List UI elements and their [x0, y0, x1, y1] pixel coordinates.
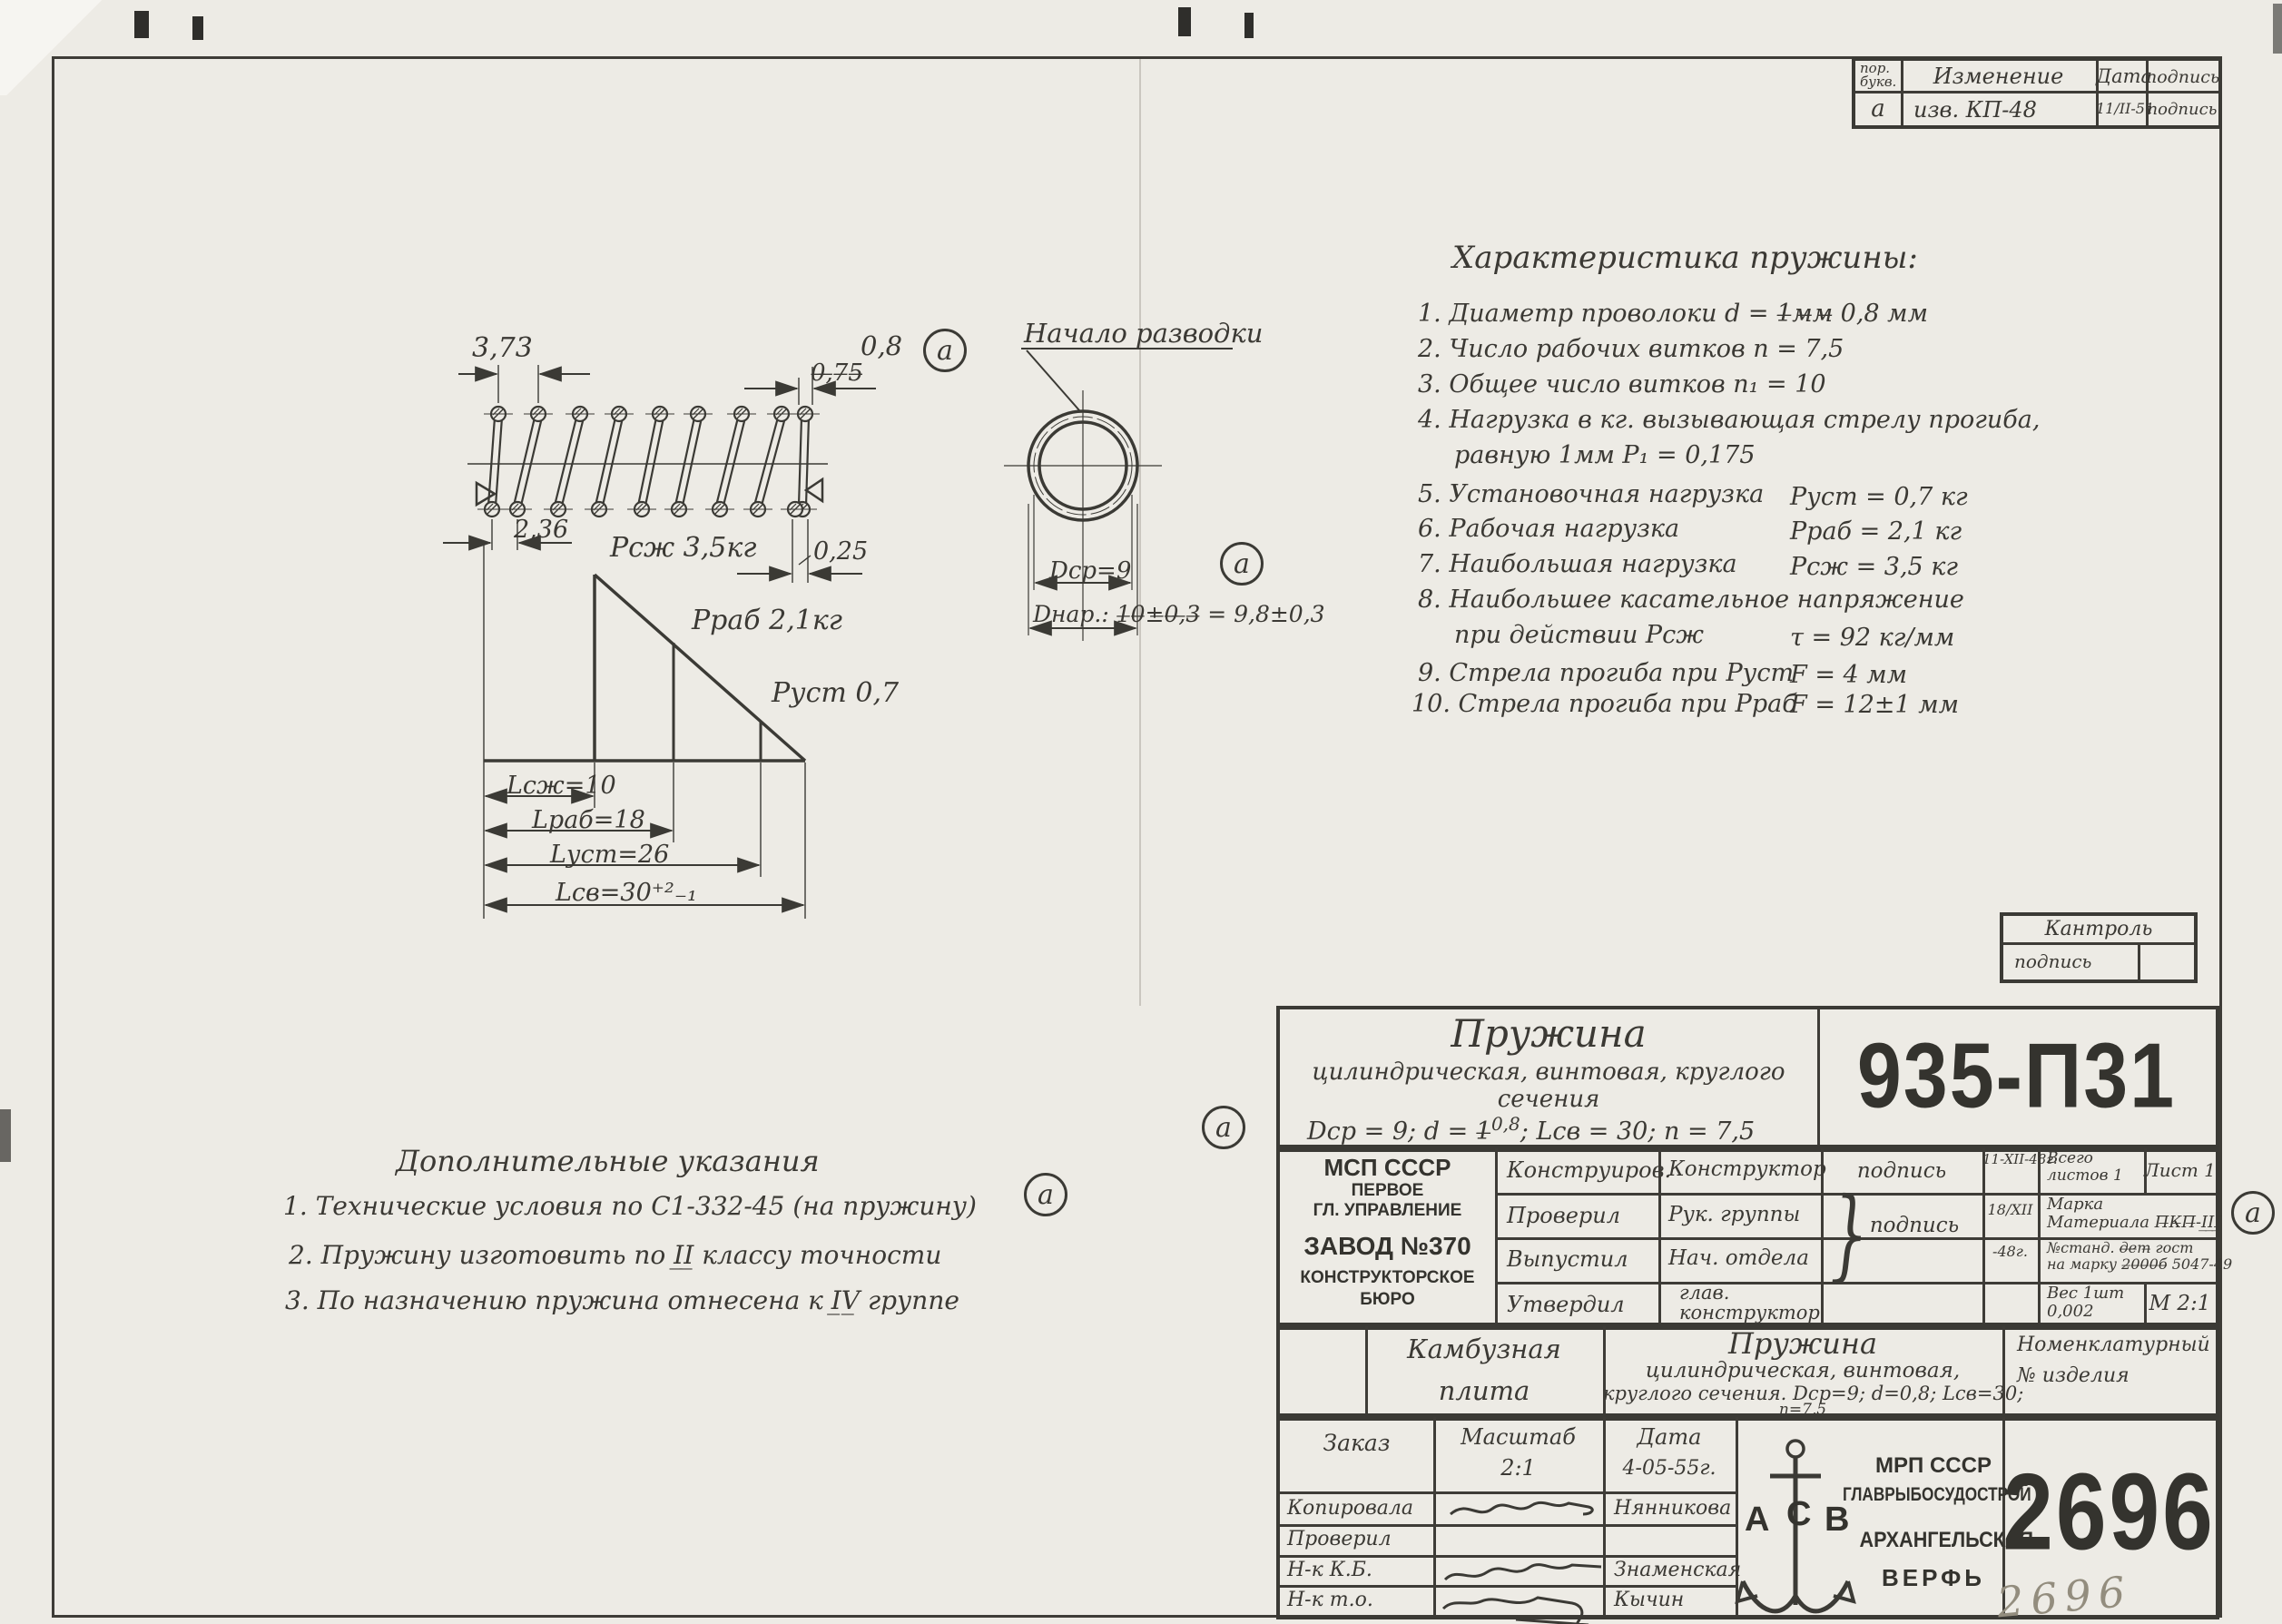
- title-block-middle: МСП СССР ПЕРВОЕ ГЛ. УПРАВЛЕНИЕ ЗАВОД №37…: [1276, 1145, 2219, 1330]
- sheet-number: Лист 1: [2144, 1159, 2216, 1181]
- scale-label: Масштаб: [1433, 1424, 1603, 1450]
- dim-end: 2,36: [514, 516, 568, 544]
- char-value-10: F = 12±1 мм: [1790, 691, 1959, 719]
- char-value-8: τ = 92 кг/мм: [1790, 624, 1954, 652]
- len-work-label: Lраб=18: [532, 806, 645, 834]
- title-block-product: Камбузная плита Пружина цилиндрическая, …: [1276, 1323, 2219, 1421]
- revision-marker-a: а: [1220, 542, 1264, 586]
- weight: Вес 1шт0,002: [2047, 1284, 2124, 1321]
- date-label: Дата: [1603, 1424, 1736, 1450]
- copied-name: Нянникова: [1614, 1497, 1731, 1520]
- note-item-3: 3. По назначению пружина отнесена к I̲V̲…: [285, 1285, 959, 1315]
- note-item-2: 2. Пружину изготовить по I̲I̲ классу точ…: [289, 1240, 941, 1270]
- logo-letter-b: В: [1825, 1501, 1849, 1540]
- org-line-6: БЮРО: [1280, 1290, 1495, 1310]
- head-to-label: Н-к т.о.: [1287, 1589, 1373, 1611]
- org-line-3: ГЛ. УПРАВЛЕНИЕ: [1280, 1201, 1495, 1221]
- char-item-10: 10. Стрела прогиба при Рраб: [1411, 690, 1797, 718]
- dim-pitch: 3,73: [472, 332, 533, 364]
- head-to-name: Кычин: [1614, 1589, 1684, 1611]
- copied-label: Копировала: [1287, 1497, 1413, 1520]
- char-item-6: 6. Рабочая нагрузка: [1418, 515, 1679, 543]
- role-4: глав.конструктор: [1679, 1283, 1820, 1323]
- product-desc-1: цилиндрическая, винтовая,: [1603, 1359, 2002, 1383]
- nomenclature-1: Номенклатурный: [2017, 1334, 2210, 1356]
- control-title: Кантроль: [2003, 918, 2194, 940]
- rev-col-letter-header: пор.букв.: [1860, 62, 1896, 89]
- part-name: Пружина: [1280, 1011, 1817, 1056]
- rev-row-letter: а: [1855, 95, 1901, 123]
- dim-wire-old: 0̶,̶7̶5̶: [811, 359, 863, 387]
- drawing-number: 935-П31: [1817, 1022, 2216, 1128]
- char-item-8b: при действии Рсж: [1454, 621, 1704, 649]
- rev-date-header: Дата: [2096, 65, 2146, 87]
- sheets-total: Всеголистов 1: [2047, 1150, 2123, 1185]
- blueprint-sheet: 3,73 0,8 0̶,̶7̶5̶ 2,36 0,25 Рсж 3,5кг Рр…: [0, 0, 2282, 1624]
- product-name: Пружина: [1603, 1326, 2002, 1361]
- revision-marker-a: а: [2231, 1191, 2275, 1235]
- stage-1: Конструиров.: [1507, 1157, 1671, 1183]
- support-mark-right: [806, 479, 822, 501]
- part-params: Dср = 9; d = 1̶0,8; Lсв = 30; n = 7,5: [1307, 1113, 1755, 1146]
- date-3: -48г.: [1982, 1243, 2038, 1260]
- dim-tip: 0,25: [813, 537, 868, 566]
- char-value-5: Руст = 0,7 кг: [1790, 483, 1968, 511]
- control-sign: подпись: [2014, 950, 2091, 972]
- revision-table: пор.букв. Изменение Дата подпись а изв. …: [1852, 57, 2222, 129]
- stage-2: Проверил: [1507, 1203, 1620, 1228]
- ministry-line-3: АРХАНГЕЛЬСКАЯ: [1860, 1528, 1999, 1553]
- winding-start-label: Начало разводки: [1024, 318, 1263, 349]
- dim-wire-new: 0,8: [861, 330, 902, 361]
- date-value: 4-05-55г.: [1603, 1457, 1736, 1480]
- head-kb-label: Н-к К.Б.: [1287, 1559, 1372, 1581]
- char-item-1: 1. Диаметр проволоки d = 1̶м̶м̶ 0,8 мм: [1418, 300, 1928, 328]
- date-1: 11-XII-48г.: [1982, 1152, 2038, 1166]
- head-kb-name: Знаменская: [1614, 1559, 1741, 1581]
- rev-row-date: 11/II-51: [2096, 100, 2146, 117]
- load-set-label: Руст 0,7: [772, 677, 899, 709]
- inventory-number: 2696: [2002, 1451, 2216, 1576]
- role-3: Нач. отдела: [1668, 1246, 1809, 1270]
- load-max-label: Рсж 3,5кг: [610, 532, 756, 564]
- role-2: Рук. группы: [1668, 1203, 1800, 1226]
- title-block-upper: Пружина цилиндрическая, винтовая, кругло…: [1276, 1006, 2219, 1152]
- revision-marker-a: а: [923, 329, 967, 372]
- material: МаркаМатериала П̶К̶П̶-I̲I̲I̲: [2047, 1196, 2220, 1232]
- rev-sign-header: подпись: [2146, 67, 2218, 87]
- checked-label: Проверил: [1287, 1528, 1392, 1550]
- char-value-9: F = 4 мм: [1790, 661, 1907, 689]
- note-item-1: 1. Технические условия по С1-332-45 (на …: [283, 1191, 977, 1221]
- dim-mean-label: Dср=9: [1049, 557, 1131, 585]
- stage-3: Выпустил: [1507, 1246, 1628, 1272]
- ministry-line-4: ВЕРФЬ: [1861, 1564, 2006, 1592]
- char-item-8: 8. Наибольшее касательное напряжение: [1418, 586, 1964, 614]
- logo-letter-c: С: [1786, 1495, 1811, 1534]
- org-line-4: ЗАВОД №370: [1280, 1232, 1495, 1261]
- logo-letter-a: А: [1745, 1501, 1769, 1540]
- len-free-label: Lсв=30⁺²₋₁: [556, 879, 697, 907]
- char-value-6: Рраб = 2,1 кг: [1790, 517, 1962, 546]
- revision-marker-a: а: [1202, 1106, 1245, 1149]
- scale-value: 2:1: [1433, 1455, 1603, 1481]
- rev-change-header: Изменение: [1901, 64, 2096, 89]
- char-item-4: 4. Нагрузка в кг. вызывающая стрелу прог…: [1418, 406, 2040, 434]
- date-2: 18/XII: [1982, 1201, 2038, 1218]
- org-line-2: ПЕРВОЕ: [1280, 1181, 1495, 1201]
- spring-coils: [477, 407, 820, 517]
- revision-marker-a: а: [1024, 1173, 1067, 1216]
- org-line-5: КОНСТРУКТОРСКОЕ: [1280, 1268, 1495, 1288]
- rev-row-sign: подпись: [2146, 100, 2218, 119]
- notes-title: Дополнительные указания: [396, 1144, 820, 1178]
- stage-4: Утвердил: [1507, 1292, 1625, 1317]
- len-comp-label: Lсж=10: [507, 772, 616, 800]
- char-item-3: 3. Общее число витков n₁ = 10: [1418, 370, 1826, 399]
- char-item-9: 9. Стрела прогиба при Руст: [1418, 659, 1794, 687]
- scale-cell: М 2:1: [2144, 1292, 2216, 1315]
- dim-outer-label: Dнар.: 1̶0̶±̶0̶,̶3̶ = 9,8±0,3: [1033, 601, 1325, 627]
- brace: }: [1830, 1176, 1868, 1292]
- dim-pitch-lines: [458, 365, 590, 403]
- len-set-label: Lуст=26: [550, 841, 669, 869]
- char-item-4b: равную 1мм Р₁ = 0,175: [1454, 441, 1756, 469]
- char-item-5: 5. Установочная нагрузка: [1418, 480, 1764, 508]
- char-item-2: 2. Число рабочих витков n = 7,5: [1418, 335, 1844, 363]
- char-item-7: 7. Наибольшая нагрузка: [1418, 550, 1737, 578]
- order-label: Заказ: [1280, 1430, 1433, 1456]
- rev-row-change: изв. КП-48: [1913, 97, 2037, 123]
- nomenclature-2: № изделия: [2017, 1364, 2130, 1387]
- characteristics-title: Характеристика пружины:: [1452, 240, 1918, 276]
- unit-name-1: Камбузная: [1365, 1334, 1603, 1364]
- load-work-label: Рраб 2,1кг: [692, 605, 842, 636]
- spring-end-view: [1004, 349, 1233, 641]
- char-value-7: Рсж = 3,5 кг: [1790, 553, 1958, 581]
- ministry-line-1: МРП СССР: [1861, 1453, 2006, 1479]
- org-line-1: МСП СССР: [1280, 1154, 1495, 1182]
- part-sub2: сечения: [1280, 1086, 1817, 1113]
- unit-name-2: плита: [1365, 1375, 1603, 1406]
- role-1: Конструктор: [1668, 1157, 1826, 1181]
- standard-number: №станд. д̶е̶т̶ гостна марку 2̶0̶0̶0̶б̶ 5…: [2047, 1240, 2232, 1273]
- ministry-line-2: ГЛАВРЫБОСУДОСТРОЙ: [1843, 1484, 1977, 1506]
- control-box: Кантроль подпись: [2000, 912, 2198, 983]
- part-sub1: цилиндрическая, винтовая, круглого: [1280, 1058, 1817, 1086]
